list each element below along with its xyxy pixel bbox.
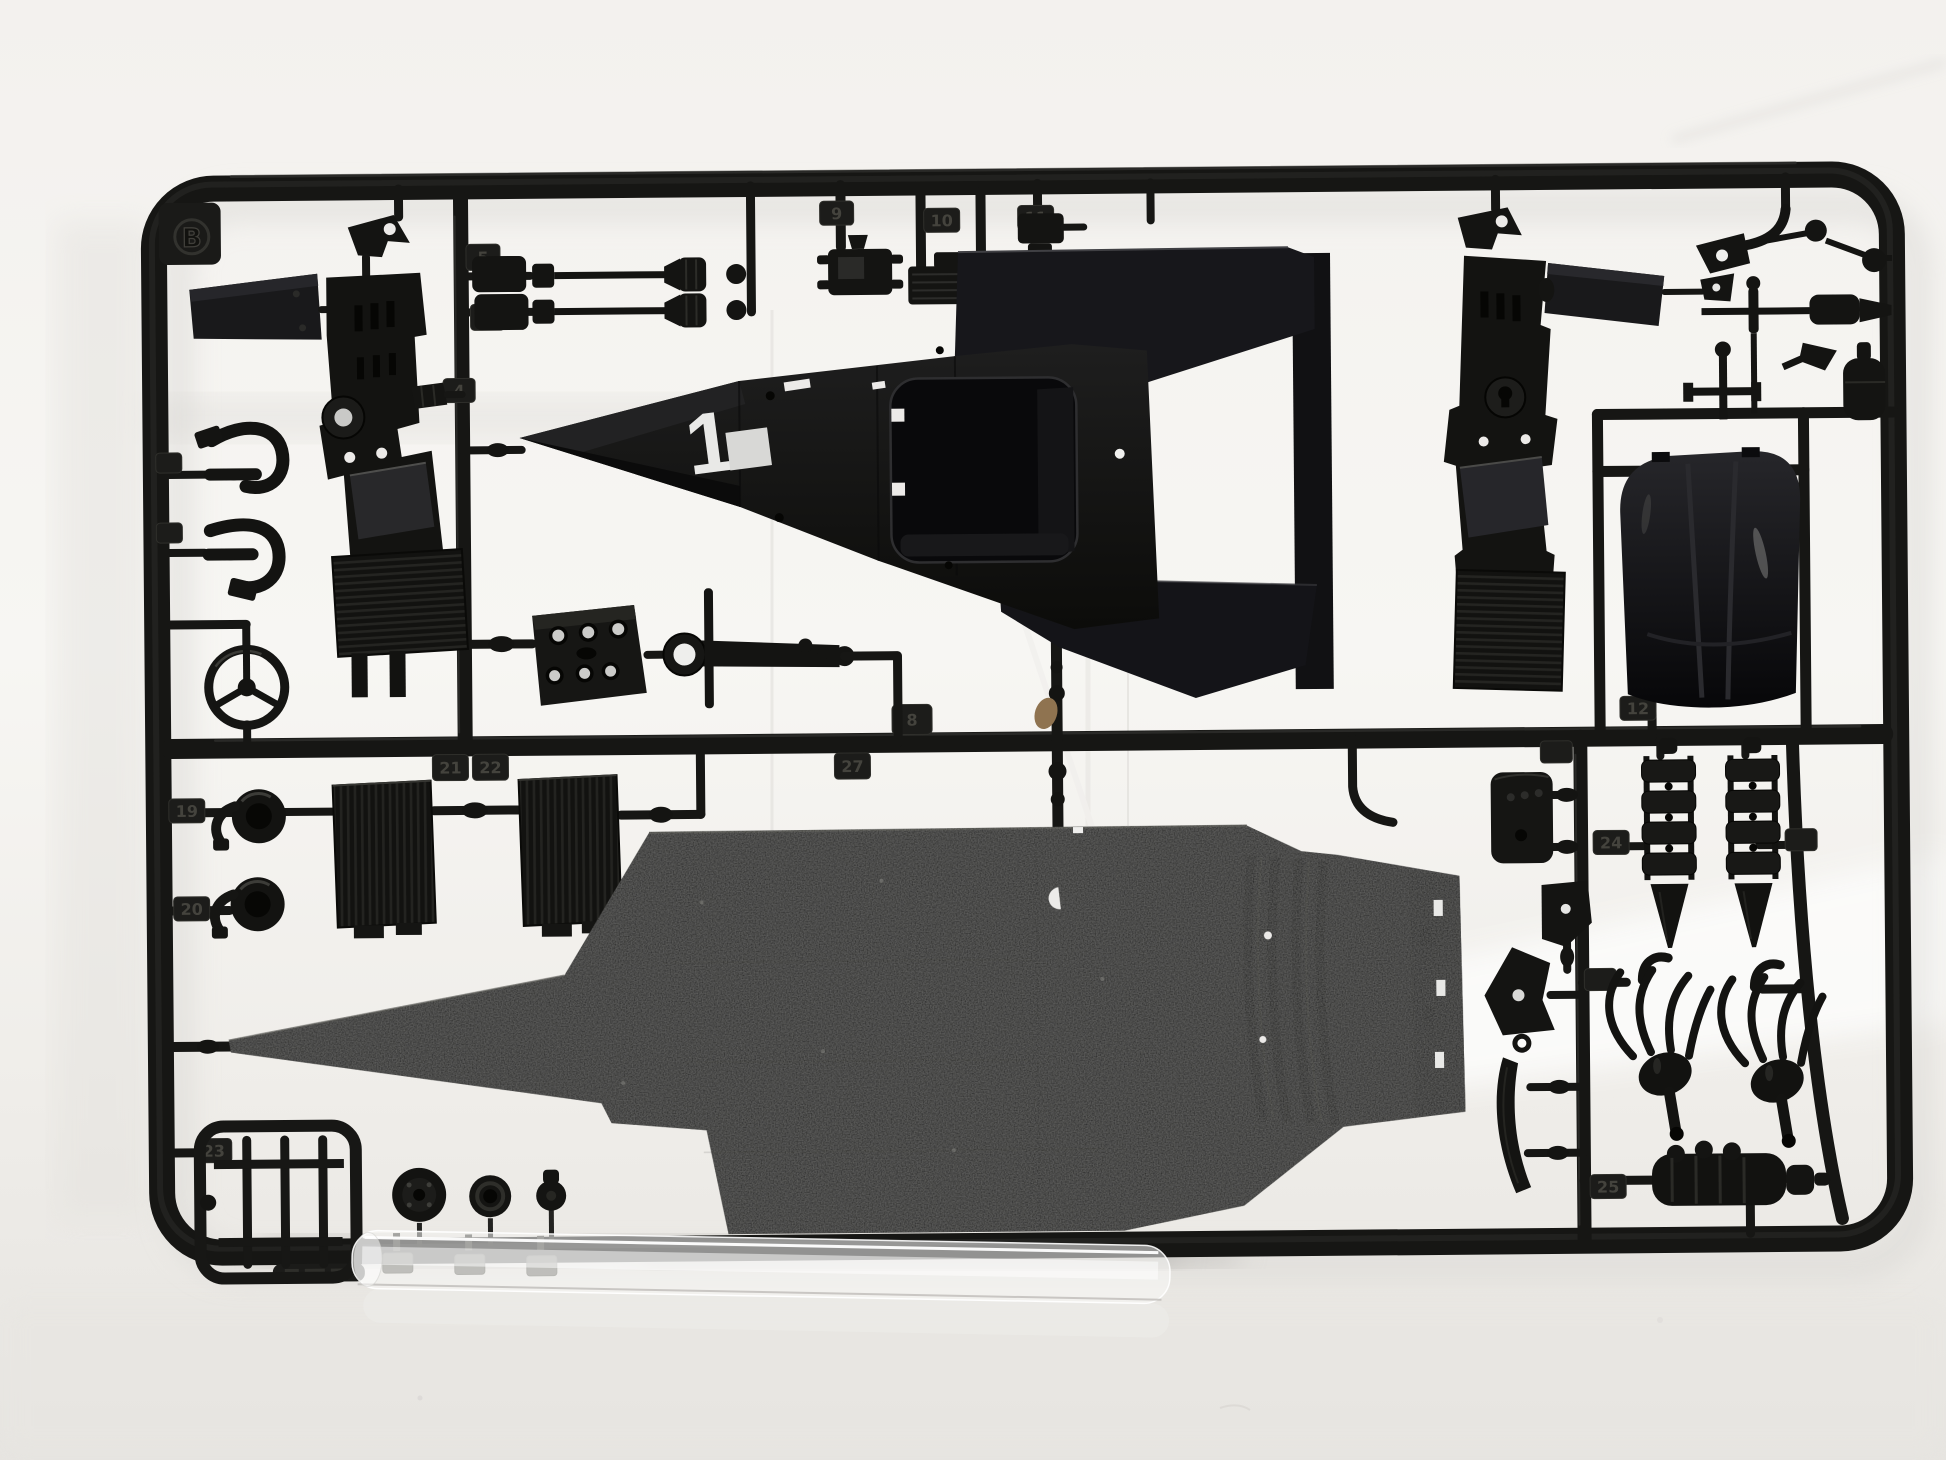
svg-text:20: 20 [180, 900, 202, 919]
gate-tab-24: 24 [1593, 830, 1629, 854]
gate-tab-4: 4 [443, 378, 475, 402]
gate-tab-10: 10 [924, 208, 960, 232]
gate-tab-blank [1540, 741, 1572, 763]
gate-tab-20: 20 [174, 897, 210, 921]
vertical-rail-right [1580, 737, 1584, 1241]
gate-tab-25: 25 [1590, 1174, 1626, 1198]
svg-text:19: 19 [176, 802, 198, 821]
clear-plastic-strip [351, 1230, 1171, 1338]
runner-letter-mark: B [159, 203, 222, 266]
radiator-grille-part [333, 781, 436, 939]
svg-text:27: 27 [841, 757, 863, 776]
svg-text:21: 21 [439, 758, 461, 777]
svg-text:22: 22 [479, 758, 501, 777]
model-kit-sprue-photo: B 4 5 6 8 9 10 11 12 19 20 21 22 23 24 2… [0, 0, 1946, 1460]
left-wall-shade [55, 220, 150, 1220]
svg-text:25: 25 [1597, 1177, 1619, 1196]
gate-tab-blank [156, 523, 182, 543]
gate-tab-blank [1785, 829, 1817, 851]
pulley-disc-part [392, 1168, 446, 1222]
gate-tab-19: 19 [169, 799, 205, 823]
gate-tab-blank [156, 453, 182, 473]
bucket-seat-part [1620, 447, 1802, 709]
svg-text:8: 8 [906, 710, 917, 729]
gate-tab-27: 27 [834, 753, 870, 779]
svg-text:24: 24 [1600, 833, 1622, 852]
gate-tab-9: 9 [820, 201, 854, 225]
svg-text:10: 10 [930, 211, 952, 230]
photo-stage: B 4 5 6 8 9 10 11 12 19 20 21 22 23 24 2… [0, 0, 1946, 1460]
body-white-decal [725, 427, 772, 470]
svg-text:12: 12 [1627, 699, 1649, 718]
gate-tab-21: 21 [432, 754, 468, 780]
runner-letter: B [182, 224, 202, 254]
pulley-disc-part [469, 1175, 511, 1217]
gate-tab-22: 22 [472, 754, 508, 780]
engine-block-part [532, 605, 647, 706]
svg-text:9: 9 [831, 204, 842, 223]
bracket-box-part [1491, 772, 1554, 864]
vertical-rail-left [460, 198, 465, 746]
